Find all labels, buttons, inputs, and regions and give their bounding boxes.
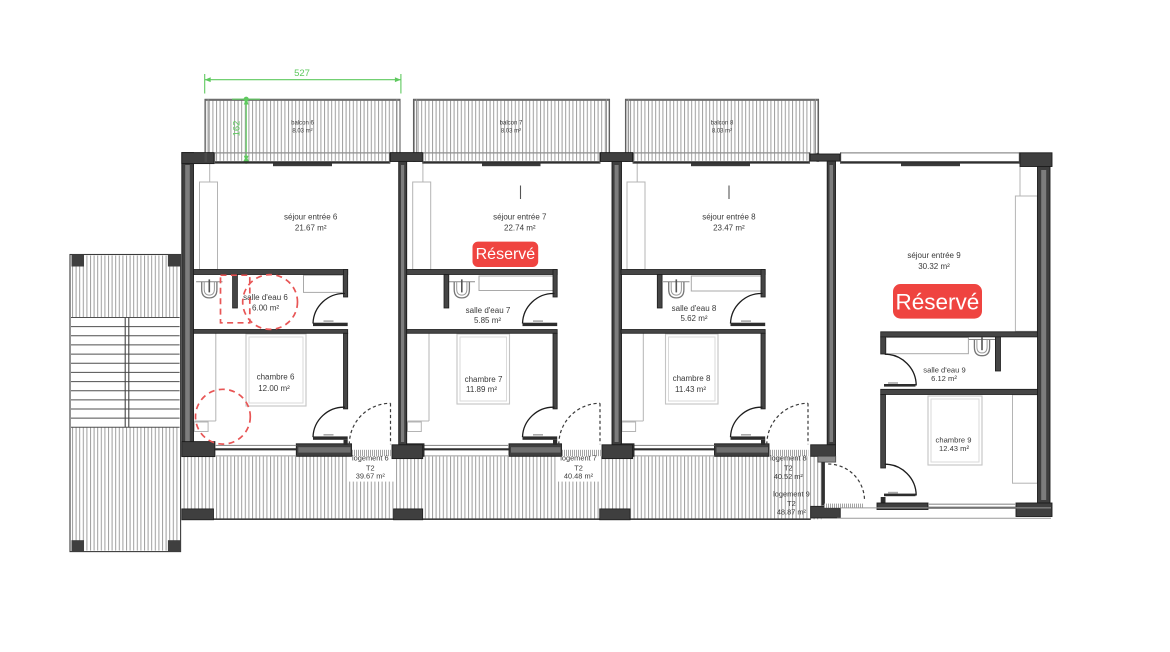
svg-text:salle d'eau 9: salle d'eau 9: [923, 365, 965, 374]
svg-text:salle d'eau 8: salle d'eau 8: [672, 304, 717, 313]
svg-text:Réservé: Réservé: [476, 246, 536, 263]
svg-text:8.03 m²: 8.03 m²: [501, 129, 521, 135]
svg-text:balcon 7: balcon 7: [500, 121, 523, 127]
svg-text:21.67 m²: 21.67 m²: [295, 224, 327, 233]
svg-text:logement 6: logement 6: [352, 454, 389, 463]
svg-text:balcon 8: balcon 8: [711, 121, 734, 127]
svg-text:162: 162: [232, 121, 243, 137]
svg-text:séjour entrée 8: séjour entrée 8: [702, 213, 756, 222]
svg-text:11.43 m²: 11.43 m²: [675, 385, 706, 394]
svg-text:527: 527: [294, 68, 310, 79]
svg-text:logement 7: logement 7: [560, 454, 597, 463]
svg-text:40.48 m²: 40.48 m²: [564, 472, 594, 481]
svg-text:8.03 m²: 8.03 m²: [712, 129, 732, 135]
svg-text:30.32 m²: 30.32 m²: [918, 262, 950, 271]
svg-text:séjour entrée 9: séjour entrée 9: [907, 251, 961, 260]
svg-text:5.85 m²: 5.85 m²: [474, 316, 501, 325]
svg-text:chambre 6: chambre 6: [257, 372, 295, 381]
svg-text:48.87 m²: 48.87 m²: [777, 507, 807, 516]
svg-text:39.67 m²: 39.67 m²: [356, 472, 386, 481]
svg-text:séjour entrée 7: séjour entrée 7: [493, 213, 547, 222]
svg-text:logement 8: logement 8: [770, 454, 807, 463]
svg-text:12.43 m²: 12.43 m²: [939, 444, 969, 453]
svg-text:23.47 m²: 23.47 m²: [713, 224, 745, 233]
svg-text:6.12 m²: 6.12 m²: [931, 374, 957, 383]
svg-text:balcon 6: balcon 6: [291, 121, 314, 127]
svg-text:6.00 m²: 6.00 m²: [252, 304, 279, 313]
svg-text:8.03 m²: 8.03 m²: [292, 129, 312, 135]
svg-text:11.89 m²: 11.89 m²: [466, 385, 497, 394]
svg-text:séjour entrée 6: séjour entrée 6: [284, 213, 338, 222]
svg-text:5.62 m²: 5.62 m²: [680, 314, 707, 323]
svg-text:salle d'eau 7: salle d'eau 7: [466, 306, 511, 315]
svg-text:12.00 m²: 12.00 m²: [258, 384, 290, 393]
svg-text:Réservé: Réservé: [896, 290, 980, 315]
svg-text:chambre 9: chambre 9: [936, 435, 972, 444]
svg-text:40.52 m²: 40.52 m²: [774, 472, 804, 481]
svg-text:22.74 m²: 22.74 m²: [504, 224, 536, 233]
svg-text:chambre 7: chambre 7: [465, 375, 503, 384]
svg-text:logement 9: logement 9: [773, 490, 810, 499]
svg-text:chambre 8: chambre 8: [673, 374, 711, 383]
